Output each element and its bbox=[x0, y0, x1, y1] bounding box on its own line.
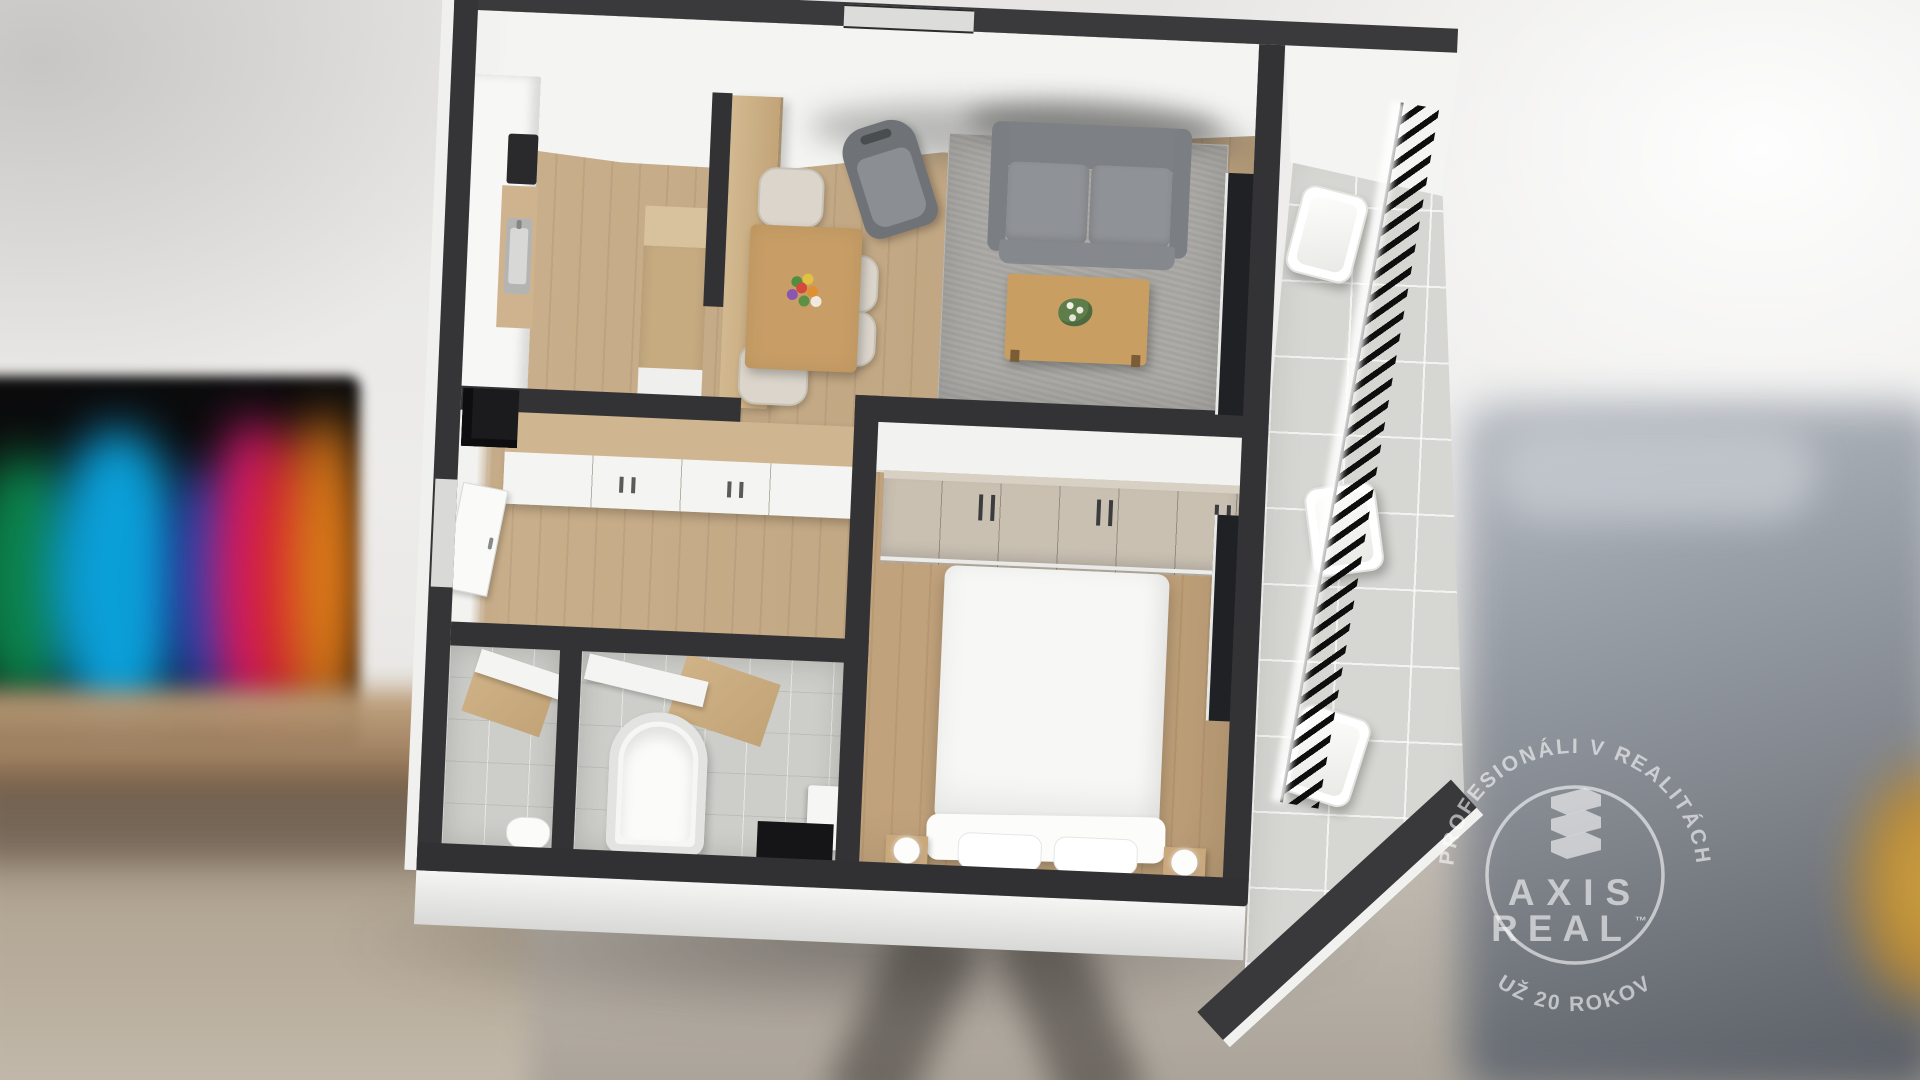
shelf-shadow bbox=[0, 782, 460, 862]
floorplan-render-screenshot: PROFESIONÁLI V REALITÁCH AXIS REAL™ UŽ 2… bbox=[0, 0, 1920, 1080]
watermark-svg: PROFESIONÁLI V REALITÁCH AXIS REAL™ UŽ 2… bbox=[1415, 715, 1735, 1035]
hallway-wardrobe bbox=[502, 412, 862, 519]
dining-table bbox=[745, 224, 863, 373]
sink-faucet bbox=[516, 220, 521, 229]
ventilation-shaft bbox=[461, 388, 519, 448]
tv-color-blob-orange bbox=[290, 412, 360, 732]
sofa-cushion-left bbox=[1005, 161, 1089, 244]
bedside-lamp-left bbox=[893, 837, 920, 864]
bathtub bbox=[605, 711, 709, 857]
coffee-table-foot-left bbox=[1010, 350, 1020, 362]
double-bed bbox=[934, 565, 1170, 831]
entrance-opening bbox=[431, 479, 458, 588]
watermark-brand-real: REAL™ bbox=[1491, 908, 1647, 949]
tv-color-blob-cyan bbox=[50, 428, 185, 728]
coffee-table-foot-right bbox=[1131, 355, 1141, 367]
sofa-cushion-right bbox=[1088, 165, 1172, 248]
bedroom-wardrobe-handles bbox=[978, 494, 983, 520]
axis-building-icon bbox=[1551, 788, 1601, 859]
bathtub-basin bbox=[620, 725, 695, 842]
plant-flowers bbox=[1066, 302, 1073, 309]
balcony-chair-seat bbox=[1295, 194, 1359, 274]
kitchen-sink bbox=[504, 217, 533, 294]
blurred-tv-shelf bbox=[0, 690, 460, 790]
watermark-arc-bottom: UŽ 20 ROKOV bbox=[1494, 971, 1657, 1016]
door-handle bbox=[487, 537, 493, 550]
coffee-table bbox=[1004, 273, 1150, 365]
bedside-lamp-right bbox=[1171, 849, 1198, 876]
axis-real-watermark: PROFESIONÁLI V REALITÁCH AXIS REAL™ UŽ 2… bbox=[1415, 715, 1735, 1035]
dining-chair-north bbox=[757, 166, 826, 229]
sink-basin bbox=[508, 228, 528, 285]
kitchen-tall-cabinet-top bbox=[644, 206, 710, 249]
flower-bouquet bbox=[796, 282, 807, 293]
apartment-floorplan bbox=[407, 0, 1554, 1080]
blurred-couch-armrest bbox=[1496, 424, 1816, 520]
table-plant bbox=[1058, 298, 1093, 327]
cooktop bbox=[506, 133, 538, 184]
wardrobe-handles bbox=[619, 477, 624, 493]
sofa bbox=[986, 121, 1192, 274]
watermark-brand-axis: AXIS bbox=[1508, 872, 1642, 913]
